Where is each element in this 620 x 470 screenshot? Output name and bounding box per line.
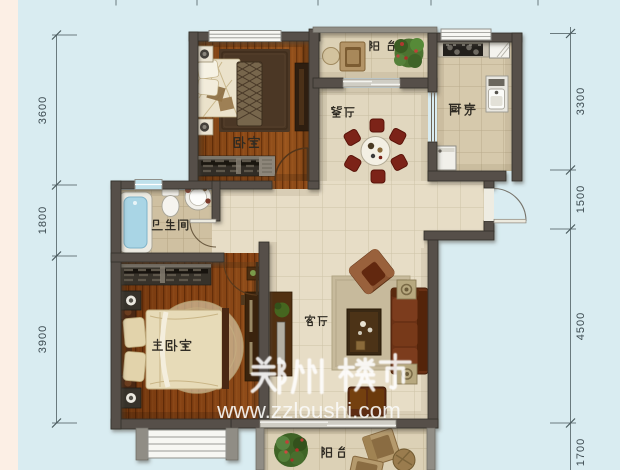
- svg-text:3300: 3300: [575, 87, 587, 115]
- svg-text:1500: 1500: [575, 185, 587, 213]
- svg-text:3600: 3600: [37, 96, 49, 124]
- svg-text:1800: 1800: [37, 206, 49, 234]
- svg-text:3900: 3900: [37, 325, 49, 353]
- svg-text:www.zzloushi.com: www.zzloushi.com: [216, 398, 401, 423]
- svg-text:1700: 1700: [575, 438, 587, 466]
- svg-text:4500: 4500: [575, 312, 587, 340]
